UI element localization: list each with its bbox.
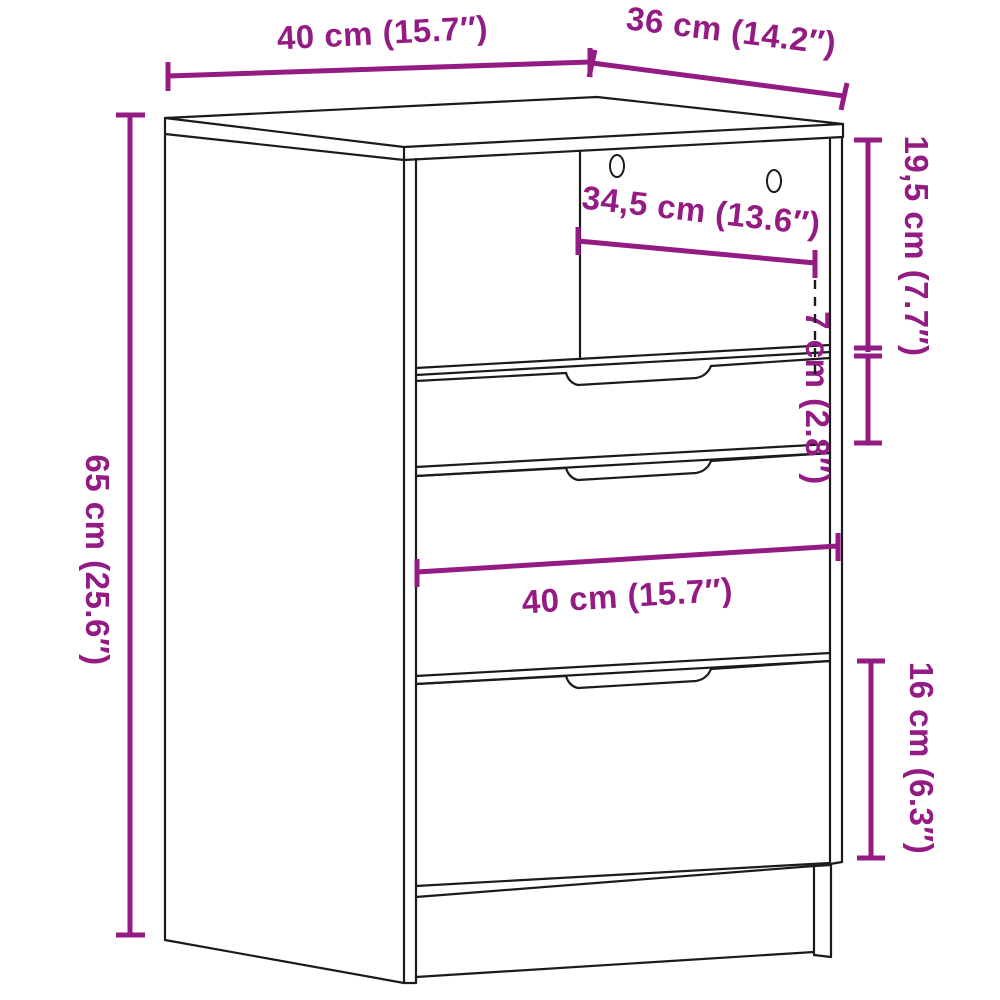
top-panel-top-face	[165, 97, 843, 147]
dim-label-top-drawer-height: 7 cm (2.8″)	[799, 311, 836, 485]
dim-label-total-height: 65 cm (25.6″)	[79, 454, 116, 665]
drawer-2	[416, 453, 830, 676]
cabinet-top-panel	[165, 97, 843, 160]
product-dimension-diagram: 40 cm (15.7″) 36 cm (14.2″) 19,5 cm (7.7…	[0, 0, 1000, 1000]
dimension-drawer-width: 40 cm (15.7″)	[417, 533, 838, 620]
plinth-bottom-edge	[416, 952, 814, 977]
left-side-panel	[165, 134, 404, 983]
dim-tick	[841, 83, 847, 110]
drawer-1	[416, 358, 830, 467]
dimension-annotations: 40 cm (15.7″) 36 cm (14.2″) 19,5 cm (7.7…	[79, 0, 940, 935]
dim-label-compartment-width: 34,5 cm (13.6″)	[580, 179, 822, 243]
top-panel-front-edge-band	[404, 124, 843, 160]
dimension-width-top: 40 cm (15.7″)	[168, 9, 590, 91]
dim-line	[168, 62, 590, 76]
top-panel-left-edge-band	[165, 118, 404, 160]
diagram-canvas: 40 cm (15.7″) 36 cm (14.2″) 19,5 cm (7.7…	[0, 0, 1000, 1000]
drawer-3	[416, 661, 830, 886]
drawer-1-top-edge	[416, 358, 830, 381]
dimension-compartment-width: 34,5 cm (13.6″)	[578, 179, 823, 379]
dim-label-drawer-width: 40 cm (15.7″)	[521, 571, 734, 621]
drawer-3-bottom-edge	[416, 863, 830, 886]
dim-label-bottom-drawer-height: 16 cm (6.3″)	[903, 662, 940, 854]
dim-line	[592, 63, 844, 96]
screw-hole-right	[767, 170, 781, 192]
dimension-compartment-height: 19,5 cm (7.7″)	[854, 136, 935, 357]
dimension-depth-top: 36 cm (14.2″)	[589, 0, 847, 110]
front-right-bottom-connector	[830, 862, 842, 864]
dimension-total-height: 65 cm (25.6″)	[79, 115, 145, 935]
drawer-1-handle	[566, 366, 711, 385]
dim-line	[417, 546, 838, 572]
screw-hole-left	[610, 155, 624, 177]
right-leg-top-edge	[814, 865, 831, 866]
cabinet-carcass	[165, 134, 842, 983]
dim-label-depth-top: 36 cm (14.2″)	[624, 0, 838, 62]
dim-line	[578, 241, 815, 263]
dimension-bottom-drawer-height: 16 cm (6.3″)	[857, 661, 940, 858]
right-leg-bottom-edge	[814, 955, 831, 957]
dim-label-width-top: 40 cm (15.7″)	[276, 9, 489, 57]
dim-label-compartment-height: 19,5 cm (7.7″)	[898, 136, 935, 357]
plinth-top-edge	[416, 866, 814, 897]
